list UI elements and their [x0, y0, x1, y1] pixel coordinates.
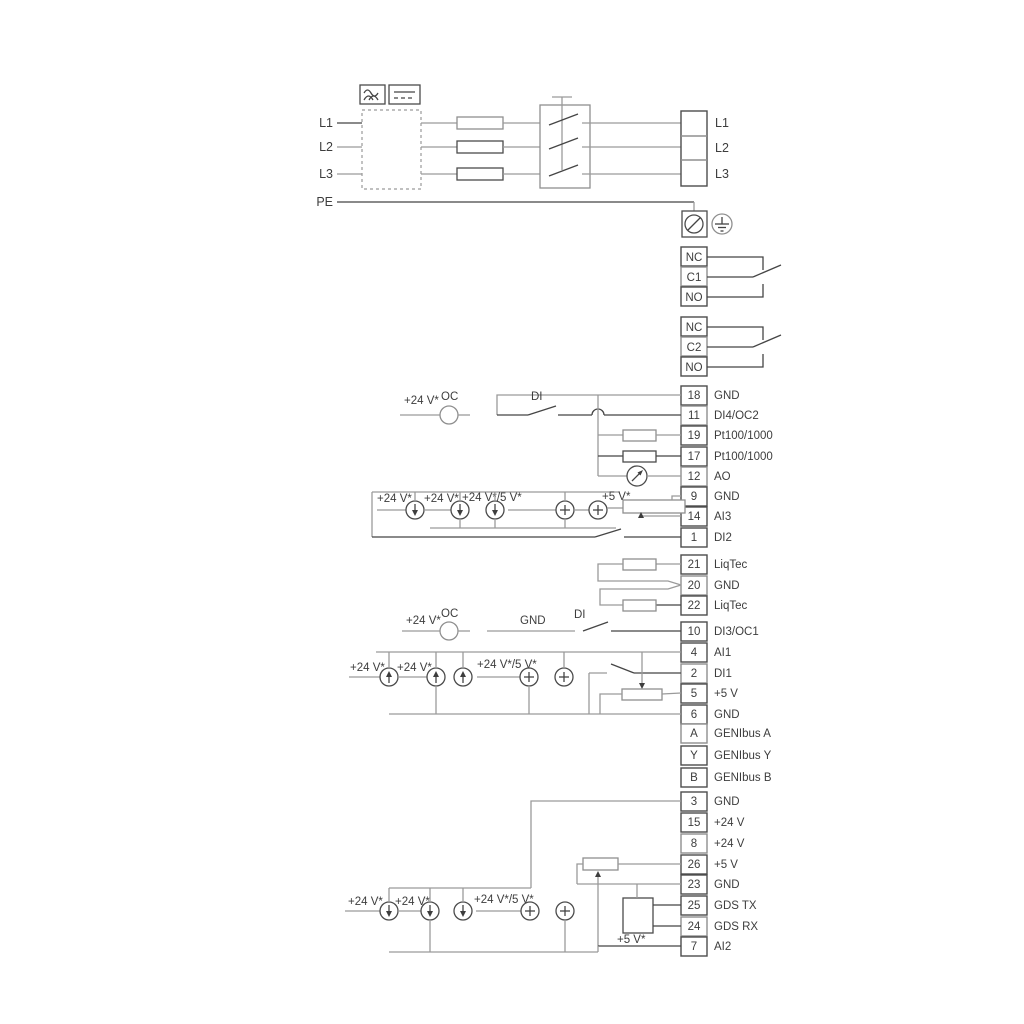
oc-label: OC	[441, 608, 458, 620]
source-plus-icon	[556, 902, 574, 952]
liqtec-sensor-1	[623, 559, 656, 570]
terminal-21-label: LiqTec	[714, 559, 747, 571]
pe-label: PE	[316, 195, 333, 209]
terminal-11: 11	[688, 410, 700, 422]
relay2-c2: C2	[687, 342, 702, 354]
terminal-25-label: GDS TX	[714, 900, 757, 912]
source-plus-icon	[520, 668, 538, 714]
relay1-no: NO	[685, 292, 702, 304]
out-l1-label: L1	[715, 116, 729, 130]
ac-icon	[360, 85, 385, 104]
ai3-di2-circuit: +24 V* +24 V* +24 V*/5 V* +5 V*	[372, 491, 685, 537]
terminal-4: 4	[691, 647, 698, 659]
terminal-5-label: +5 V	[714, 688, 738, 700]
relay2-no: NO	[685, 362, 702, 374]
dc-icon	[389, 85, 420, 104]
plus24-label: +24 V*	[406, 615, 441, 627]
gnd-label: GND	[520, 615, 546, 627]
terminal-20: 20	[688, 580, 701, 592]
terminal-2-label: DI1	[714, 668, 732, 680]
control-terminal-strip: 18GND 11DI4/OC2 19Pt100/1000 17Pt100/100…	[681, 386, 773, 956]
terminal-10-label: DI3/OC1	[714, 626, 759, 638]
relay1-c1: C1	[687, 272, 702, 284]
terminal-14-label: AI3	[714, 511, 731, 523]
open-collector-source-icon	[440, 406, 470, 424]
terminal-7: 7	[691, 941, 697, 953]
terminal-9: 9	[691, 491, 697, 503]
terminal-15: 15	[688, 817, 701, 829]
terminal-22-label: LiqTec	[714, 600, 747, 612]
terminal-b-label: GENIbus B	[714, 772, 772, 784]
earth-icon	[712, 214, 732, 234]
plus24-label: +24 V*	[350, 662, 385, 674]
relay1-nc: NC	[686, 252, 703, 264]
plus24-label: +24 V*	[397, 662, 432, 674]
terminal-14: 14	[688, 511, 701, 523]
terminal-21: 21	[688, 559, 701, 571]
relay2-nc: NC	[686, 322, 703, 334]
terminal-3-label: GND	[714, 796, 740, 808]
phase-l2-label: L2	[319, 140, 333, 154]
terminal-20-label: GND	[714, 580, 740, 592]
relay-1: NC C1 NO	[681, 247, 781, 306]
terminal-y: Y	[690, 750, 698, 762]
di-label: DI	[531, 391, 543, 403]
open-collector-source-icon	[440, 622, 470, 640]
wiring-diagram: L1 L2 L3 PE	[0, 0, 1024, 1024]
ai1-di1-circuit: +24 V* +24 V* +24 V*/5 V*	[349, 652, 681, 714]
terminal-11-label: DI4/OC2	[714, 410, 759, 422]
diagram-canvas: L1 L2 L3 PE	[0, 0, 1024, 1024]
terminal-25: 25	[688, 900, 701, 912]
pt100-sensor-2	[623, 451, 656, 462]
terminal-18-label: GND	[714, 390, 740, 402]
fuse-l3	[457, 168, 503, 180]
di-label: DI	[574, 609, 586, 621]
source-plus-icon	[521, 902, 539, 920]
terminal-26: 26	[688, 859, 701, 871]
terminal-6: 6	[691, 709, 697, 721]
terminal-24-label: GDS RX	[714, 921, 758, 933]
terminal-8: 8	[691, 838, 697, 850]
terminal-10: 10	[688, 626, 701, 638]
terminal-24: 24	[688, 921, 701, 933]
terminal-1: 1	[691, 532, 697, 544]
terminal-26-label: +5 V	[714, 859, 738, 871]
terminal-5: 5	[691, 688, 697, 700]
liqtec-sensor-2	[623, 600, 656, 611]
plus24-label: +24 V*	[377, 493, 412, 505]
terminal-b: B	[690, 772, 698, 784]
terminal-a-label: GENIbus A	[714, 728, 771, 740]
fuse-l1	[457, 117, 503, 129]
source-plus-icon	[589, 501, 607, 519]
ai2-gds-circuit: +5 V* +24 V* +24 V* +24 V*/5 V*	[345, 801, 681, 952]
terminal-18: 18	[688, 390, 701, 402]
source-plus-icon	[556, 492, 574, 519]
plus24-label: +24 V*	[404, 395, 439, 407]
terminal-17-label: Pt100/1000	[714, 451, 773, 463]
current-source-up-icon	[454, 652, 472, 686]
pt100-ao-circuit	[598, 430, 681, 486]
source-plus-icon	[555, 652, 573, 686]
analog-output-meter-icon	[627, 466, 647, 486]
phase-l3-label: L3	[319, 167, 333, 181]
terminal-7-label: AI2	[714, 941, 731, 953]
terminal-19-label: Pt100/1000	[714, 430, 773, 442]
current-source-down-icon	[380, 888, 398, 920]
gds-sensor-box	[623, 884, 681, 933]
terminal-19: 19	[688, 430, 701, 442]
pt100-sensor-1	[623, 430, 656, 441]
terminal-3: 3	[691, 796, 697, 808]
terminal-23-label: GND	[714, 879, 740, 891]
terminal-2: 2	[691, 668, 697, 680]
terminal-9-label: GND	[714, 491, 740, 503]
current-source-down-icon	[454, 888, 472, 920]
terminal-12: 12	[688, 471, 701, 483]
terminal-a: A	[690, 728, 698, 740]
mains-terminal-block	[681, 111, 707, 186]
terminal-12-label: AO	[714, 471, 731, 483]
liqtec-circuit	[598, 559, 681, 611]
terminal-22: 22	[688, 600, 701, 612]
potentiometer	[623, 496, 685, 518]
fuse-l2	[457, 141, 503, 153]
potentiometer	[600, 652, 681, 714]
filter-box	[362, 110, 421, 189]
terminal-y-label: GENIbus Y	[714, 750, 772, 762]
oc-label: OC	[441, 391, 458, 403]
plus5-label: +5 V*	[617, 934, 646, 946]
terminal-4-label: AI1	[714, 647, 731, 659]
terminal-17: 17	[688, 451, 701, 463]
mains-input-section: L1 L2 L3 PE	[316, 85, 732, 237]
terminal-6-label: GND	[714, 709, 740, 721]
terminal-1-label: DI2	[714, 532, 732, 544]
out-l3-label: L3	[715, 167, 729, 181]
terminal-23: 23	[688, 879, 701, 891]
terminal-15-label: +24 V	[714, 817, 745, 829]
phase-l1-label: L1	[319, 116, 333, 130]
terminal-8-label: +24 V	[714, 838, 745, 850]
plus24-label: +24 V*	[348, 896, 383, 908]
screw-terminal-icon	[682, 211, 707, 237]
di3-oc1-circuit: +24 V* OC GND DI	[402, 608, 681, 640]
out-l2-label: L2	[715, 141, 729, 155]
relay-2: NC C2 NO	[681, 317, 781, 376]
